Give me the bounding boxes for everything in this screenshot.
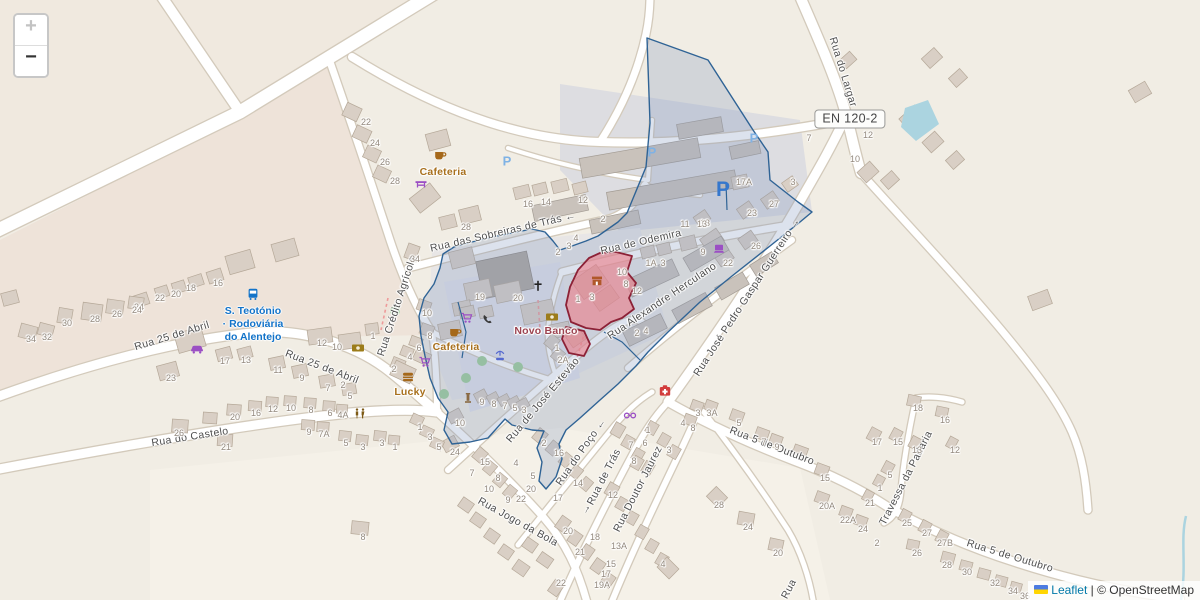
house-number: 15 [820,473,830,483]
house-number: 24 [370,138,380,148]
house-number: 12 [608,490,618,500]
house-number: 8 [360,532,365,542]
cafe-icon [433,148,447,162]
road-casing [861,173,1088,510]
parking-icon: P [503,154,512,169]
house-number: 24 [743,522,753,532]
house-number: 7 [628,440,633,450]
house-number: 18 [590,532,600,542]
house-number: 2A [557,355,568,365]
building [880,171,899,190]
house-number: 22 [723,258,733,268]
house-number: 13 [697,219,707,229]
department-store-icon [590,274,604,288]
house-number: 32 [42,332,52,342]
house-number: 12 [578,195,588,205]
bus-stop-line2: · Rodoviária [223,318,284,331]
house-number: 7 [469,468,474,478]
house-number: 19 [475,292,485,302]
toilets-icon [353,407,367,421]
house-number: 5 [530,471,535,481]
house-number: 15 [606,559,616,569]
house-number: 3 [360,442,365,452]
house-number: 9 [505,495,510,505]
house-number: 4 [573,233,578,243]
house-number: 12 [268,404,278,414]
house-number: 7 [761,437,766,447]
house-number: 7A [318,429,329,439]
house-number: 1 [575,294,580,304]
building [922,131,944,153]
shopping-cart-icon [460,311,474,325]
building [945,151,964,170]
house-number: 3A [706,408,717,418]
house-number: 28 [942,560,952,570]
building [1128,81,1151,103]
house-number: 5 [343,438,348,448]
landuse-area [150,428,830,600]
house-number: 2 [600,214,605,224]
building [203,412,218,424]
attribution-separator: | [1087,583,1097,597]
house-number: 6 [327,408,332,418]
building [1028,289,1053,310]
house-number: 10 [286,403,296,413]
house-number: 16 [554,448,564,458]
house-number: 2 [391,364,396,374]
house-number: 26 [751,241,761,251]
house-number: 10 [332,342,342,352]
house-number: 6 [642,438,647,448]
house-number: 20 [230,412,240,422]
building [977,568,991,581]
map-canvas[interactable]: Rua do LargarRua das Sobreiras de Trás ←… [0,0,1200,600]
parking-icon: P [648,145,657,160]
house-number: 5 [436,442,441,452]
building [532,182,548,196]
house-number: 15 [893,437,903,447]
house-number: 5 [512,403,517,413]
cafe-icon [448,325,462,339]
house-number: 20 [513,293,523,303]
leaflet-link[interactable]: Leaflet [1051,583,1087,597]
bus-stop-line3: do Alentejo [223,331,284,344]
monument-icon [461,392,475,406]
poi-label: Novo Banco [514,325,577,337]
house-number: 18 [186,283,196,293]
house-number: 8 [427,331,432,341]
house-number: 1 [392,442,397,452]
house-number: 12 [317,338,327,348]
house-number: 17A [736,177,752,187]
house-number: 2 [541,438,546,448]
house-number: 23 [747,208,757,218]
house-number: 4 [407,352,412,362]
house-number: 20 [526,484,536,494]
house-number: 34 [1008,586,1018,596]
house-number: 14 [573,478,583,488]
house-number: 4 [660,559,665,569]
house-number: 24 [132,305,142,315]
house-number: 9 [774,442,779,452]
house-number: 11 [680,219,689,229]
house-number: 27 [769,199,779,209]
house-number: 28 [461,222,471,232]
house-number: 3 [666,445,671,455]
house-number: 17 [220,356,230,366]
house-number: 10 [484,484,494,494]
house-number: 7 [502,401,507,411]
house-number: 21 [575,547,585,557]
house-number: 3 [790,177,795,187]
house-number: 1 [417,422,422,432]
house-number: 17 [553,493,563,503]
house-number: 20 [171,289,181,299]
house-number: 30 [62,318,72,328]
zoom-control: + − [13,13,49,78]
house-number: 7 [325,383,330,393]
bank-icon [351,341,365,355]
parking-icon: P [750,131,759,146]
house-number: 1 [877,483,882,493]
house-number: 3 [660,258,665,268]
house-number: 4 [513,458,518,468]
house-number: 26 [174,428,184,438]
house-number: 3 [695,408,700,418]
house-number: 8 [623,279,628,289]
picnic-table-icon [414,177,428,191]
house-number: 28 [90,314,100,324]
house-number: 25 [902,518,912,528]
house-number: 12 [950,445,960,455]
house-number: 8 [495,473,500,483]
house-number: 8 [690,423,695,433]
house-number: 28 [714,500,724,510]
house-number: 8 [631,456,636,466]
building [551,178,569,194]
house-number: 26 [380,157,390,167]
house-number: 9 [700,247,705,257]
poi-label: Cafeteria [433,341,480,353]
house-number: 23 [166,373,176,383]
bus-stop-line1: S. Teotónio [223,305,284,318]
ukraine-flag-icon [1034,585,1048,594]
house-number: 10 [455,418,465,428]
house-number: 12 [863,130,873,140]
house-number: 16 [213,278,223,288]
house-number: 22 [155,293,165,303]
shopping-cart-icon [418,355,432,369]
bank-icon [545,310,559,324]
house-number: 21 [865,498,875,508]
house-number: 5 [887,470,892,480]
house-number: 10 [850,154,860,164]
bus-stop-label: S. Teotónio · Rodoviária do Alentejo [223,305,284,344]
building [948,69,967,88]
house-number: 16 [523,199,533,209]
map-graphics [0,0,1200,600]
house-number: 27B [937,538,953,548]
house-number: 9 [479,397,484,407]
zoom-in-button[interactable]: + [15,15,47,46]
house-number: 7 [806,133,811,143]
house-number: 13 [912,445,922,455]
house-number: 28 [390,176,400,186]
house-number: 12 [632,286,642,296]
house-number: 17 [601,569,611,579]
road-ref-badge: EN 120-2 [814,110,885,129]
house-number: 2 [340,380,345,390]
bus-stop-icon [246,287,260,301]
house-number: 2 [634,328,639,338]
openstreetmap-link[interactable]: © OpenStreetMap [1097,583,1194,597]
house-number: 5 [347,391,352,401]
house-number: 17 [872,437,882,447]
road [916,397,962,402]
house-number: 30 [962,567,972,577]
house-number: 4A [337,410,348,420]
house-number: 16 [251,408,261,418]
house-number: 18 [913,403,923,413]
house-number: 2 [874,538,879,548]
house-number: 20 [773,548,783,558]
telephone-icon [481,313,495,327]
house-number: 10 [617,267,627,277]
house-number: 1 [554,343,559,353]
church-cross-icon [531,280,545,294]
house-number: 1 [645,425,650,435]
building [513,184,531,200]
house-number: 34 [26,334,36,344]
fountain-icon [493,349,507,363]
house-number: 22A [840,515,856,525]
house-number: 24 [450,447,460,457]
car-shop-icon [190,341,204,355]
house-number: 22 [516,494,526,504]
house-number: 3 [589,292,594,302]
house-number: 20A [819,501,835,511]
house-number: 4 [680,418,685,428]
house-number: 1A [645,258,656,268]
zoom-out-button[interactable]: − [15,46,47,76]
house-number: 6 [416,343,421,353]
house-number: 16 [940,415,950,425]
house-number: 4 [643,326,648,336]
house-number: 3 [427,432,432,442]
house-number: 8 [491,399,496,409]
house-number: 9 [299,373,304,383]
attribution-bar: Leaflet | © OpenStreetMap [1028,581,1200,600]
house-number: 10 [422,308,432,318]
building [921,47,942,68]
house-number: 2 [555,247,560,257]
pharmacy-icon [658,384,672,398]
laptop-icon [712,242,726,256]
house-number: 13A [611,541,627,551]
house-number: 14 [541,197,551,207]
house-number: 26 [112,309,122,319]
house-number: 27 [922,528,932,538]
house-number: 8 [308,405,313,415]
house-number: 3 [379,438,384,448]
house-number: 34 [410,254,420,264]
parking-icon: P [716,178,730,202]
house-number: 21 [221,442,231,452]
house-number: 20 [563,526,573,536]
building [439,214,458,230]
house-number: 32 [990,578,1000,588]
glasses-icon [623,408,637,422]
poi-label: Lucky [394,386,425,398]
fast-food-icon [401,370,415,384]
house-number: 3 [521,405,526,415]
house-number: 15 [480,457,490,467]
road [861,173,1088,510]
house-number: 19A [594,580,610,590]
house-number: 11 [273,365,282,375]
house-number: 22 [556,578,566,588]
house-number: 22 [361,117,371,127]
house-number: 9 [306,427,311,437]
house-number: 13 [241,355,251,365]
house-number: 26 [912,548,922,558]
house-number: 24 [858,524,868,534]
house-number: 5 [736,418,741,428]
house-number: 1 [370,331,375,341]
house-number: 3 [566,241,571,251]
